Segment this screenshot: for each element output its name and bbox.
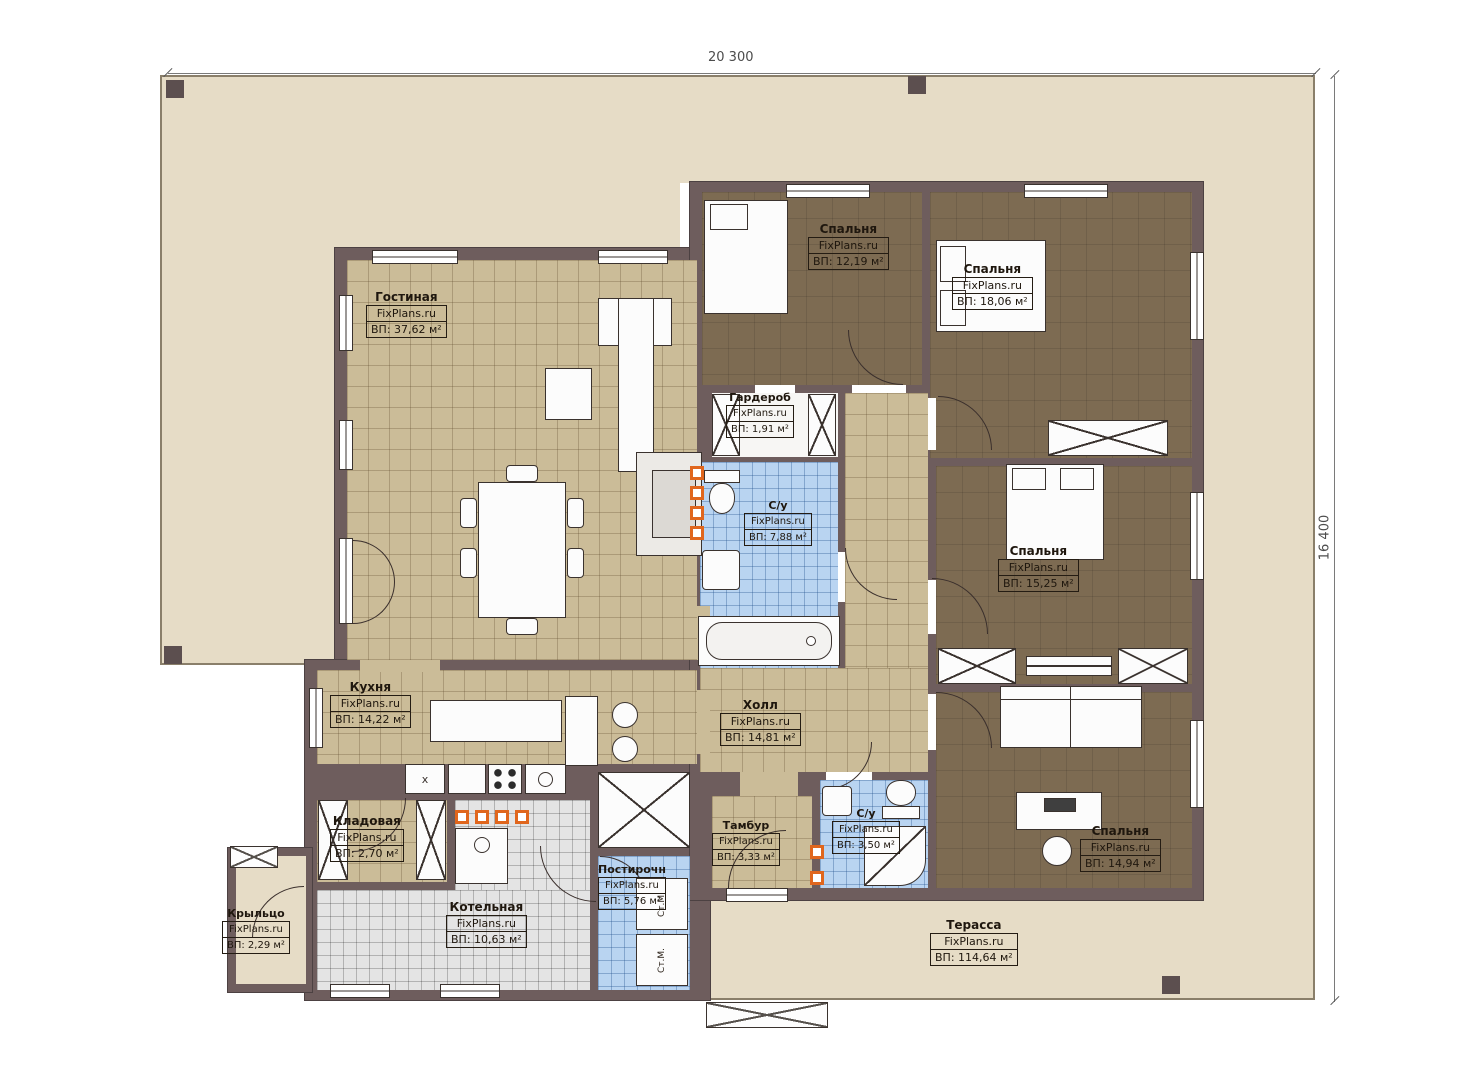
room-name: Гостиная [366, 290, 447, 305]
toilet-2-bowl [886, 780, 916, 806]
pillar-top-left [166, 80, 184, 98]
window-bedroom-2-east [1190, 252, 1204, 340]
window-bedroom-2-north [1024, 184, 1108, 198]
yard-boundary-left [160, 75, 162, 665]
vent-marker-4 [690, 526, 704, 540]
dining-chair-2 [460, 548, 477, 578]
label-laundry: Постирочн FixPlans.ru ВП: 5,76 м² [598, 862, 666, 910]
wardrobe-shelf-right [808, 394, 836, 456]
terrace-steps [706, 1002, 828, 1028]
kitchen-sink [525, 764, 566, 794]
dining-chair-5 [506, 465, 538, 482]
opening-vestibule-hall [740, 772, 798, 796]
room-name: Гардероб [726, 390, 794, 405]
dimension-line-top [168, 73, 1316, 74]
label-bedroom-2: Спальня FixPlans.ru ВП: 18,06 м² [952, 262, 1033, 310]
vent-marker-3 [690, 506, 704, 520]
kitchen-cabinet [448, 764, 486, 794]
pillar-top-middle [908, 76, 926, 94]
boiler-dial [474, 837, 490, 853]
washing-machine-2-label: Ст.М. [637, 935, 687, 985]
dining-chair-3 [567, 498, 584, 528]
sink-bathroom-1 [702, 550, 740, 590]
pantry-shelf-right [416, 800, 446, 880]
sofa-bedroom-4 [1000, 686, 1142, 748]
opening-bedroom-1-door [852, 385, 906, 393]
room-name: Постирочн [598, 862, 666, 877]
stove [488, 764, 522, 794]
wardrobe-bedroom-3-right [1118, 648, 1188, 684]
room-name: С/у [832, 806, 900, 821]
label-boiler: Котельная FixPlans.ru ВП: 10,63 м² [446, 900, 527, 948]
hall-closet [598, 772, 690, 848]
kitchen-stool-2 [612, 736, 638, 762]
window-living-north-2 [598, 250, 668, 264]
watermark: FixPlans.ru [366, 305, 447, 322]
label-vestibule: Тамбур FixPlans.ru ВП: 3,33 м² [712, 818, 780, 866]
watermark: FixPlans.ru [808, 237, 889, 254]
label-hall: Холл FixPlans.ru ВП: 14,81 м² [720, 698, 801, 746]
label-bedroom-4: Спальня FixPlans.ru ВП: 14,94 м² [1080, 824, 1161, 872]
label-bathroom-1: С/у FixPlans.ru ВП: 7,88 м² [744, 498, 812, 546]
room-name: Кухня [330, 680, 411, 695]
room-area: ВП: 114,64 м² [930, 949, 1018, 966]
room-area: ВП: 5,76 м² [598, 893, 666, 910]
label-kitchen: Кухня FixPlans.ru ВП: 14,22 м² [330, 680, 411, 728]
yard-top-band [160, 75, 1315, 183]
toilet-1-tank [704, 470, 740, 483]
room-name: Спальня [998, 544, 1079, 559]
dimension-height: 16 400 [1317, 515, 1332, 561]
watermark: FixPlans.ru [720, 713, 801, 730]
watermark: FixPlans.ru [446, 915, 527, 932]
bathtub-drain [806, 636, 816, 646]
vent-marker-2 [690, 486, 704, 500]
window-boiler-south-2 [440, 984, 500, 998]
room-area: ВП: 1,91 м² [726, 421, 794, 438]
label-terrace: Терасса FixPlans.ru ВП: 114,64 м² [930, 918, 1018, 966]
room-name: Крыльцо [222, 906, 290, 921]
room-area: ВП: 2,29 м² [222, 937, 290, 954]
bed-bedroom-3-pillow-1 [1012, 468, 1046, 490]
opening-bedroom-2-door [928, 398, 936, 450]
window-living-west-1 [339, 295, 353, 351]
washing-machine-2: Ст.М. [636, 934, 688, 986]
watermark: FixPlans.ru [1080, 839, 1161, 856]
boiler-unit [455, 828, 508, 884]
sink-basin [538, 772, 553, 787]
fridge: x [405, 764, 445, 794]
kitchen-island [430, 700, 562, 742]
vent-marker-10 [810, 871, 824, 885]
yard-right-strip [1200, 183, 1315, 1000]
window-living-north-1 [372, 250, 458, 264]
pillar-left-bottom [164, 646, 182, 664]
room-name: Холл [720, 698, 801, 713]
chair-bedroom-4 [1042, 836, 1072, 866]
room-area: ВП: 12,19 м² [808, 253, 889, 270]
dining-chair-1 [460, 498, 477, 528]
floor-plan-canvas: x Ст.М. Ст.М. [0, 0, 1473, 1080]
opening-living-kitchen [360, 660, 440, 672]
bed-bedroom-3-pillow-2 [1060, 468, 1094, 490]
sofa-living-vertical [618, 298, 654, 472]
room-area: ВП: 14,94 м² [1080, 855, 1161, 872]
coffee-table [545, 368, 592, 420]
vent-marker-5 [455, 810, 469, 824]
door-vestibule-entrance [726, 888, 788, 902]
yard-boundary-right [1313, 75, 1315, 1000]
watermark: FixPlans.ru [598, 877, 666, 894]
room-name: Спальня [808, 222, 889, 237]
room-name: С/у [744, 498, 812, 513]
vent-marker-7 [495, 810, 509, 824]
vent-marker-1 [690, 466, 704, 480]
label-wardrobe: Гардероб FixPlans.ru ВП: 1,91 м² [726, 390, 794, 438]
watermark: FixPlans.ru [726, 405, 794, 422]
porch-steps [230, 846, 278, 868]
room-area: ВП: 3,33 м² [712, 849, 780, 866]
window-bedroom-4-east [1190, 720, 1204, 808]
watermark: FixPlans.ru [744, 513, 812, 530]
window-bedroom-1-north [786, 184, 870, 198]
watermark: FixPlans.ru [930, 933, 1018, 950]
opening-bedroom-4-door [928, 694, 936, 750]
watermark: FixPlans.ru [952, 277, 1033, 294]
vent-marker-6 [475, 810, 489, 824]
fridge-mark: x [422, 773, 429, 786]
room-name: Спальня [952, 262, 1033, 277]
wardrobe-bedroom-3-left [938, 648, 1016, 684]
room-area: ВП: 15,25 м² [998, 575, 1079, 592]
wardrobe-bedroom-2 [1048, 420, 1168, 456]
opening-bathroom-1-door [838, 552, 845, 602]
toilet-1-bowl [709, 483, 735, 514]
label-bathroom-2: С/у FixPlans.ru ВП: 3,50 м² [832, 806, 900, 854]
window-kitchen-west [309, 688, 323, 748]
label-living: Гостиная FixPlans.ru ВП: 37,62 м² [366, 290, 447, 338]
yard-boundary-bottom [710, 998, 1315, 1000]
dining-chair-6 [506, 618, 538, 635]
watermark: FixPlans.ru [222, 921, 290, 938]
label-pantry: Кладовая FixPlans.ru ВП: 2,70 м² [330, 814, 404, 862]
tv-console-bedroom-3 [1026, 656, 1112, 676]
room-area: ВП: 7,88 м² [744, 529, 812, 546]
kitchen-counter-right [565, 696, 598, 766]
room-name: Терасса [930, 918, 1018, 933]
bed-bedroom-1-pillow [710, 204, 748, 230]
dimension-width: 20 300 [708, 50, 754, 65]
dimension-line-right [1334, 76, 1335, 1002]
printer-bedroom-4 [1044, 798, 1076, 812]
dining-chair-4 [567, 548, 584, 578]
watermark: FixPlans.ru [712, 833, 780, 850]
room-name: Тамбур [712, 818, 780, 833]
room-name: Кладовая [330, 814, 404, 829]
label-porch: Крыльцо FixPlans.ru ВП: 2,29 м² [222, 906, 290, 954]
room-area: ВП: 18,06 м² [952, 293, 1033, 310]
room-name: Спальня [1080, 824, 1161, 839]
dining-table [478, 482, 566, 618]
yard-top-left [160, 183, 680, 252]
door-living-terrace [339, 538, 353, 624]
window-bedroom-3-east [1190, 492, 1204, 580]
pillar-terrace-bottom [1162, 976, 1180, 994]
window-living-west-2 [339, 420, 353, 470]
room-area: ВП: 2,70 м² [330, 845, 404, 862]
label-bedroom-1: Спальня FixPlans.ru ВП: 12,19 м² [808, 222, 889, 270]
window-boiler-south-1 [330, 984, 390, 998]
floor-corridor [845, 393, 928, 668]
watermark: FixPlans.ru [832, 821, 900, 838]
label-bedroom-3: Спальня FixPlans.ru ВП: 15,25 м² [998, 544, 1079, 592]
room-area: ВП: 37,62 м² [366, 321, 447, 338]
kitchen-stool-1 [612, 702, 638, 728]
room-area: ВП: 10,63 м² [446, 931, 527, 948]
watermark: FixPlans.ru [330, 829, 404, 846]
vent-marker-9 [810, 845, 824, 859]
room-area: ВП: 14,22 м² [330, 711, 411, 728]
yard-boundary-top [160, 75, 1315, 77]
yard-left-strip [160, 252, 335, 665]
watermark: FixPlans.ru [998, 559, 1079, 576]
room-area: ВП: 3,50 м² [832, 837, 900, 854]
room-area: ВП: 14,81 м² [720, 729, 801, 746]
vent-marker-8 [515, 810, 529, 824]
room-name: Котельная [446, 900, 527, 915]
opening-kitchen-hall [697, 690, 710, 754]
watermark: FixPlans.ru [330, 695, 411, 712]
